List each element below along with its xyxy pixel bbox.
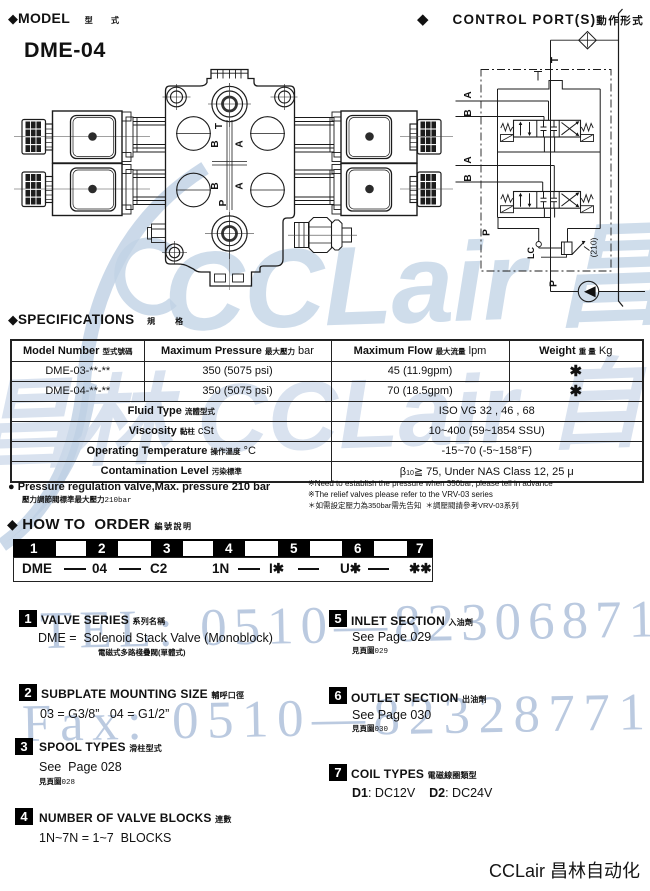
svg-text:LC: LC (526, 247, 536, 259)
svg-text:B: B (210, 182, 221, 189)
svg-text:A: A (235, 140, 246, 147)
svg-text:B: B (463, 109, 474, 116)
svg-text:P: P (549, 280, 560, 287)
svg-text:B: B (210, 140, 221, 147)
svg-text:A: A (235, 182, 246, 189)
svg-text:T: T (214, 123, 225, 129)
svg-text:B: B (463, 174, 474, 181)
svg-text:T: T (550, 57, 561, 63)
svg-text:A: A (463, 156, 474, 163)
svg-text:P: P (482, 229, 493, 236)
svg-text:(210): (210) (589, 237, 599, 257)
svg-text:A: A (463, 91, 474, 98)
